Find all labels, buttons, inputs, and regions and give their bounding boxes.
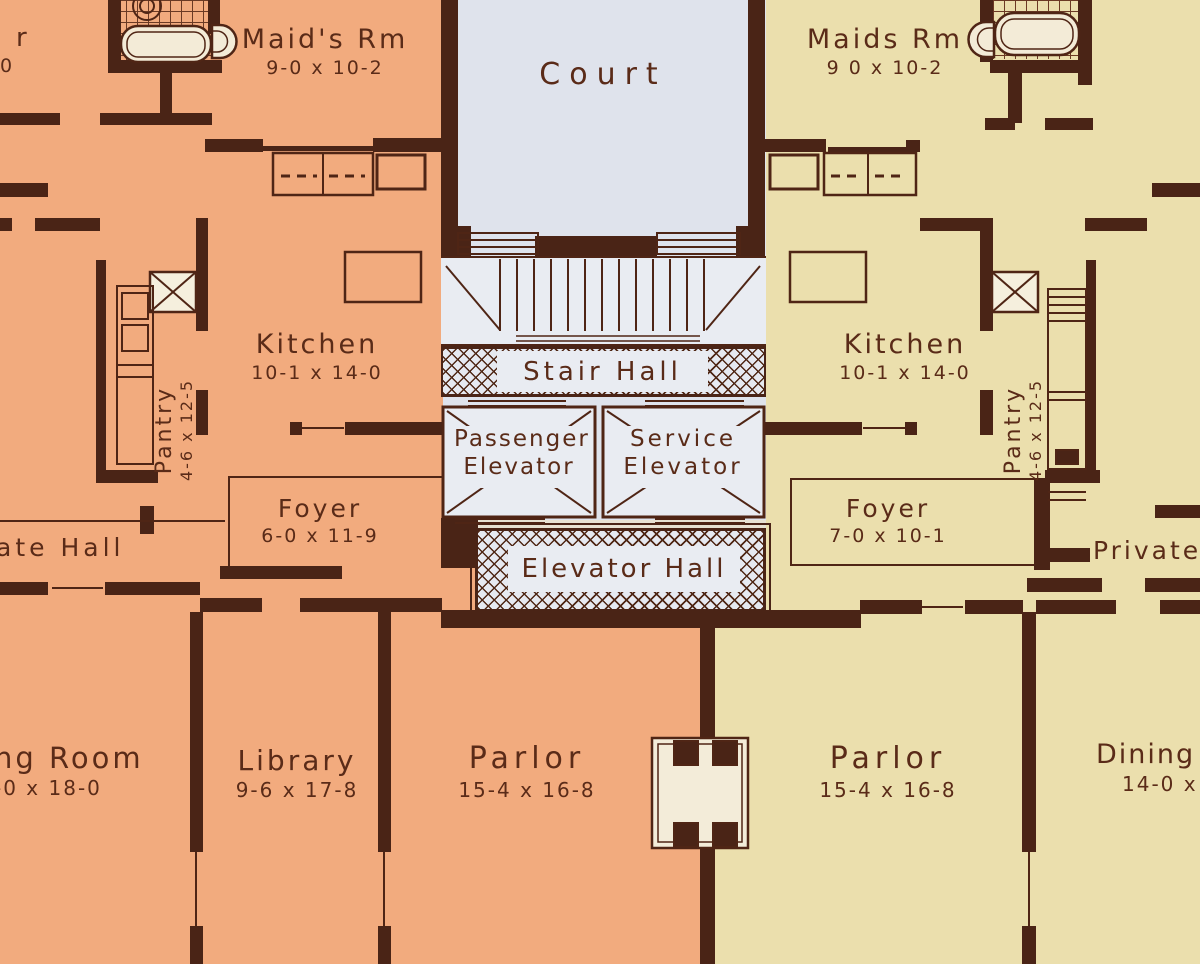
range-left-icon — [345, 252, 421, 302]
range-right-icon — [790, 252, 866, 302]
room-label-pantry-right: Pantry 4-6 x 12-5 — [943, 350, 1103, 510]
room-label-parlor-right: Parlor 15-4 x 16-8 — [788, 742, 988, 801]
room-label-private-hall-right: Private — [1093, 537, 1200, 565]
floor-plan: r 0 Maid's Rm 9-0 x 10-2 Court Maids Rm … — [0, 0, 1200, 964]
kitchen-dresser-left-icon — [273, 153, 425, 195]
dumbwaiter-right-icon — [992, 272, 1038, 312]
room-label-passenger-elevator: Passenger Elevator — [454, 426, 584, 488]
room-label-court: Court — [458, 58, 748, 92]
room-label-clipped-top-left: r 0 — [0, 24, 70, 77]
room-label-dining-room-right: Dining 14-0 x — [1096, 740, 1200, 796]
room-label-service-elevator: Service Elevator — [613, 426, 753, 488]
room-label-foyer-left: Foyer 6-0 x 11-9 — [220, 495, 420, 547]
room-label-maids-rm-right: Maids Rm 9 0 x 10-2 — [785, 25, 985, 80]
room-label-pantry-left: Pantry 4-6 x 12-5 — [94, 350, 254, 510]
room-label-foyer-right: Foyer 7-0 x 10-1 — [788, 495, 988, 547]
room-label-private-hall-left: ate Hall — [0, 534, 156, 562]
dumbwaiter-left-icon — [150, 272, 196, 312]
stair-floor — [441, 257, 766, 345]
kitchen-dresser-right-icon — [770, 153, 916, 195]
parlor-double-door-icon — [652, 738, 748, 848]
room-label-stair-hall: Stair Hall — [497, 351, 708, 392]
room-label-elevator-hall: Elevator Hall — [508, 546, 740, 592]
bathtub-right-icon — [995, 13, 1079, 55]
toilet-left-icon — [133, 0, 161, 20]
bathtub-left-icon — [121, 26, 211, 62]
room-label-parlor-left: Parlor 15-4 x 16-8 — [427, 742, 627, 801]
room-label-library: Library 9-6 x 17-8 — [197, 745, 397, 802]
room-label-dining-room-left: ng Room -0 x 18-0 — [0, 742, 184, 800]
court-sill-right-icon — [657, 233, 740, 254]
room-label-maids-rm-left: Maid's Rm 9-0 x 10-2 — [225, 25, 425, 80]
